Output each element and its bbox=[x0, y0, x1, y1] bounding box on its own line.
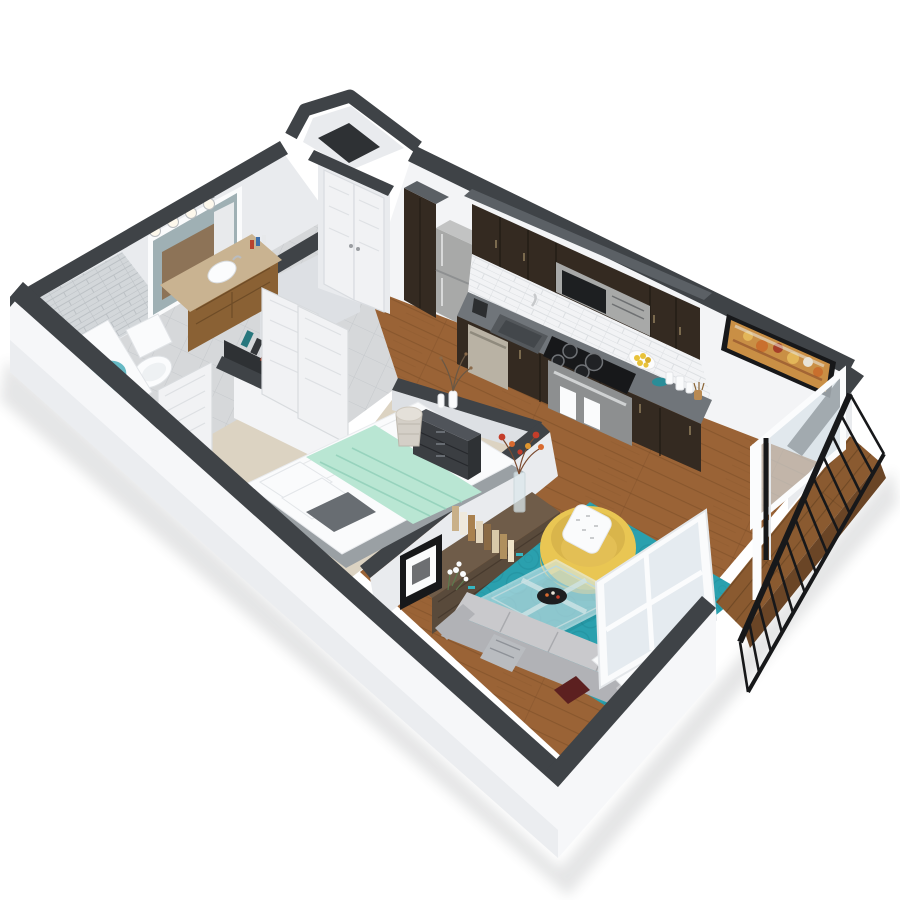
canister-3 bbox=[686, 382, 693, 393]
woven-basket bbox=[396, 407, 422, 446]
canister-1 bbox=[666, 372, 673, 384]
apartment-isometric-svg: 3D isometric cutaway floor plan renderin… bbox=[0, 0, 900, 900]
canister-2 bbox=[676, 376, 684, 390]
floorplan-render: 3D isometric cutaway floor plan renderin… bbox=[0, 0, 900, 900]
decor-bowl bbox=[537, 588, 567, 605]
utensil-crock bbox=[694, 390, 702, 400]
